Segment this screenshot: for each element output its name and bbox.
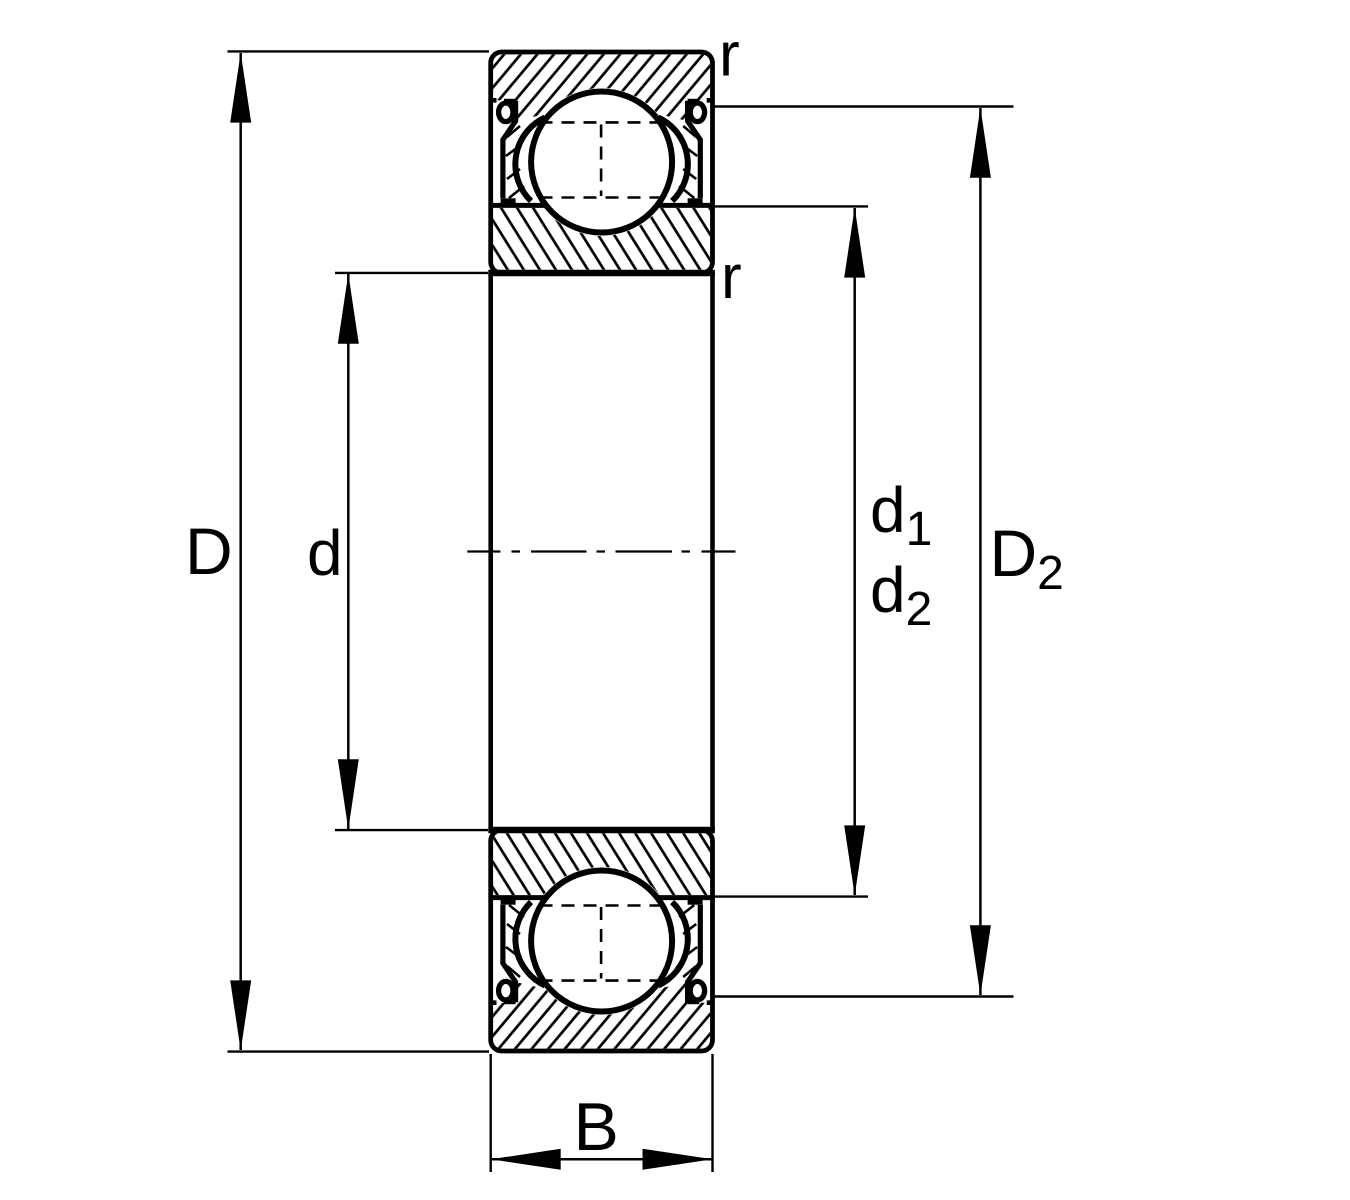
svg-text:r: r: [721, 243, 742, 312]
svg-text:r: r: [719, 21, 740, 90]
svg-text:d: d: [307, 517, 343, 589]
svg-text:B: B: [574, 1089, 619, 1165]
svg-text:D: D: [185, 514, 233, 588]
